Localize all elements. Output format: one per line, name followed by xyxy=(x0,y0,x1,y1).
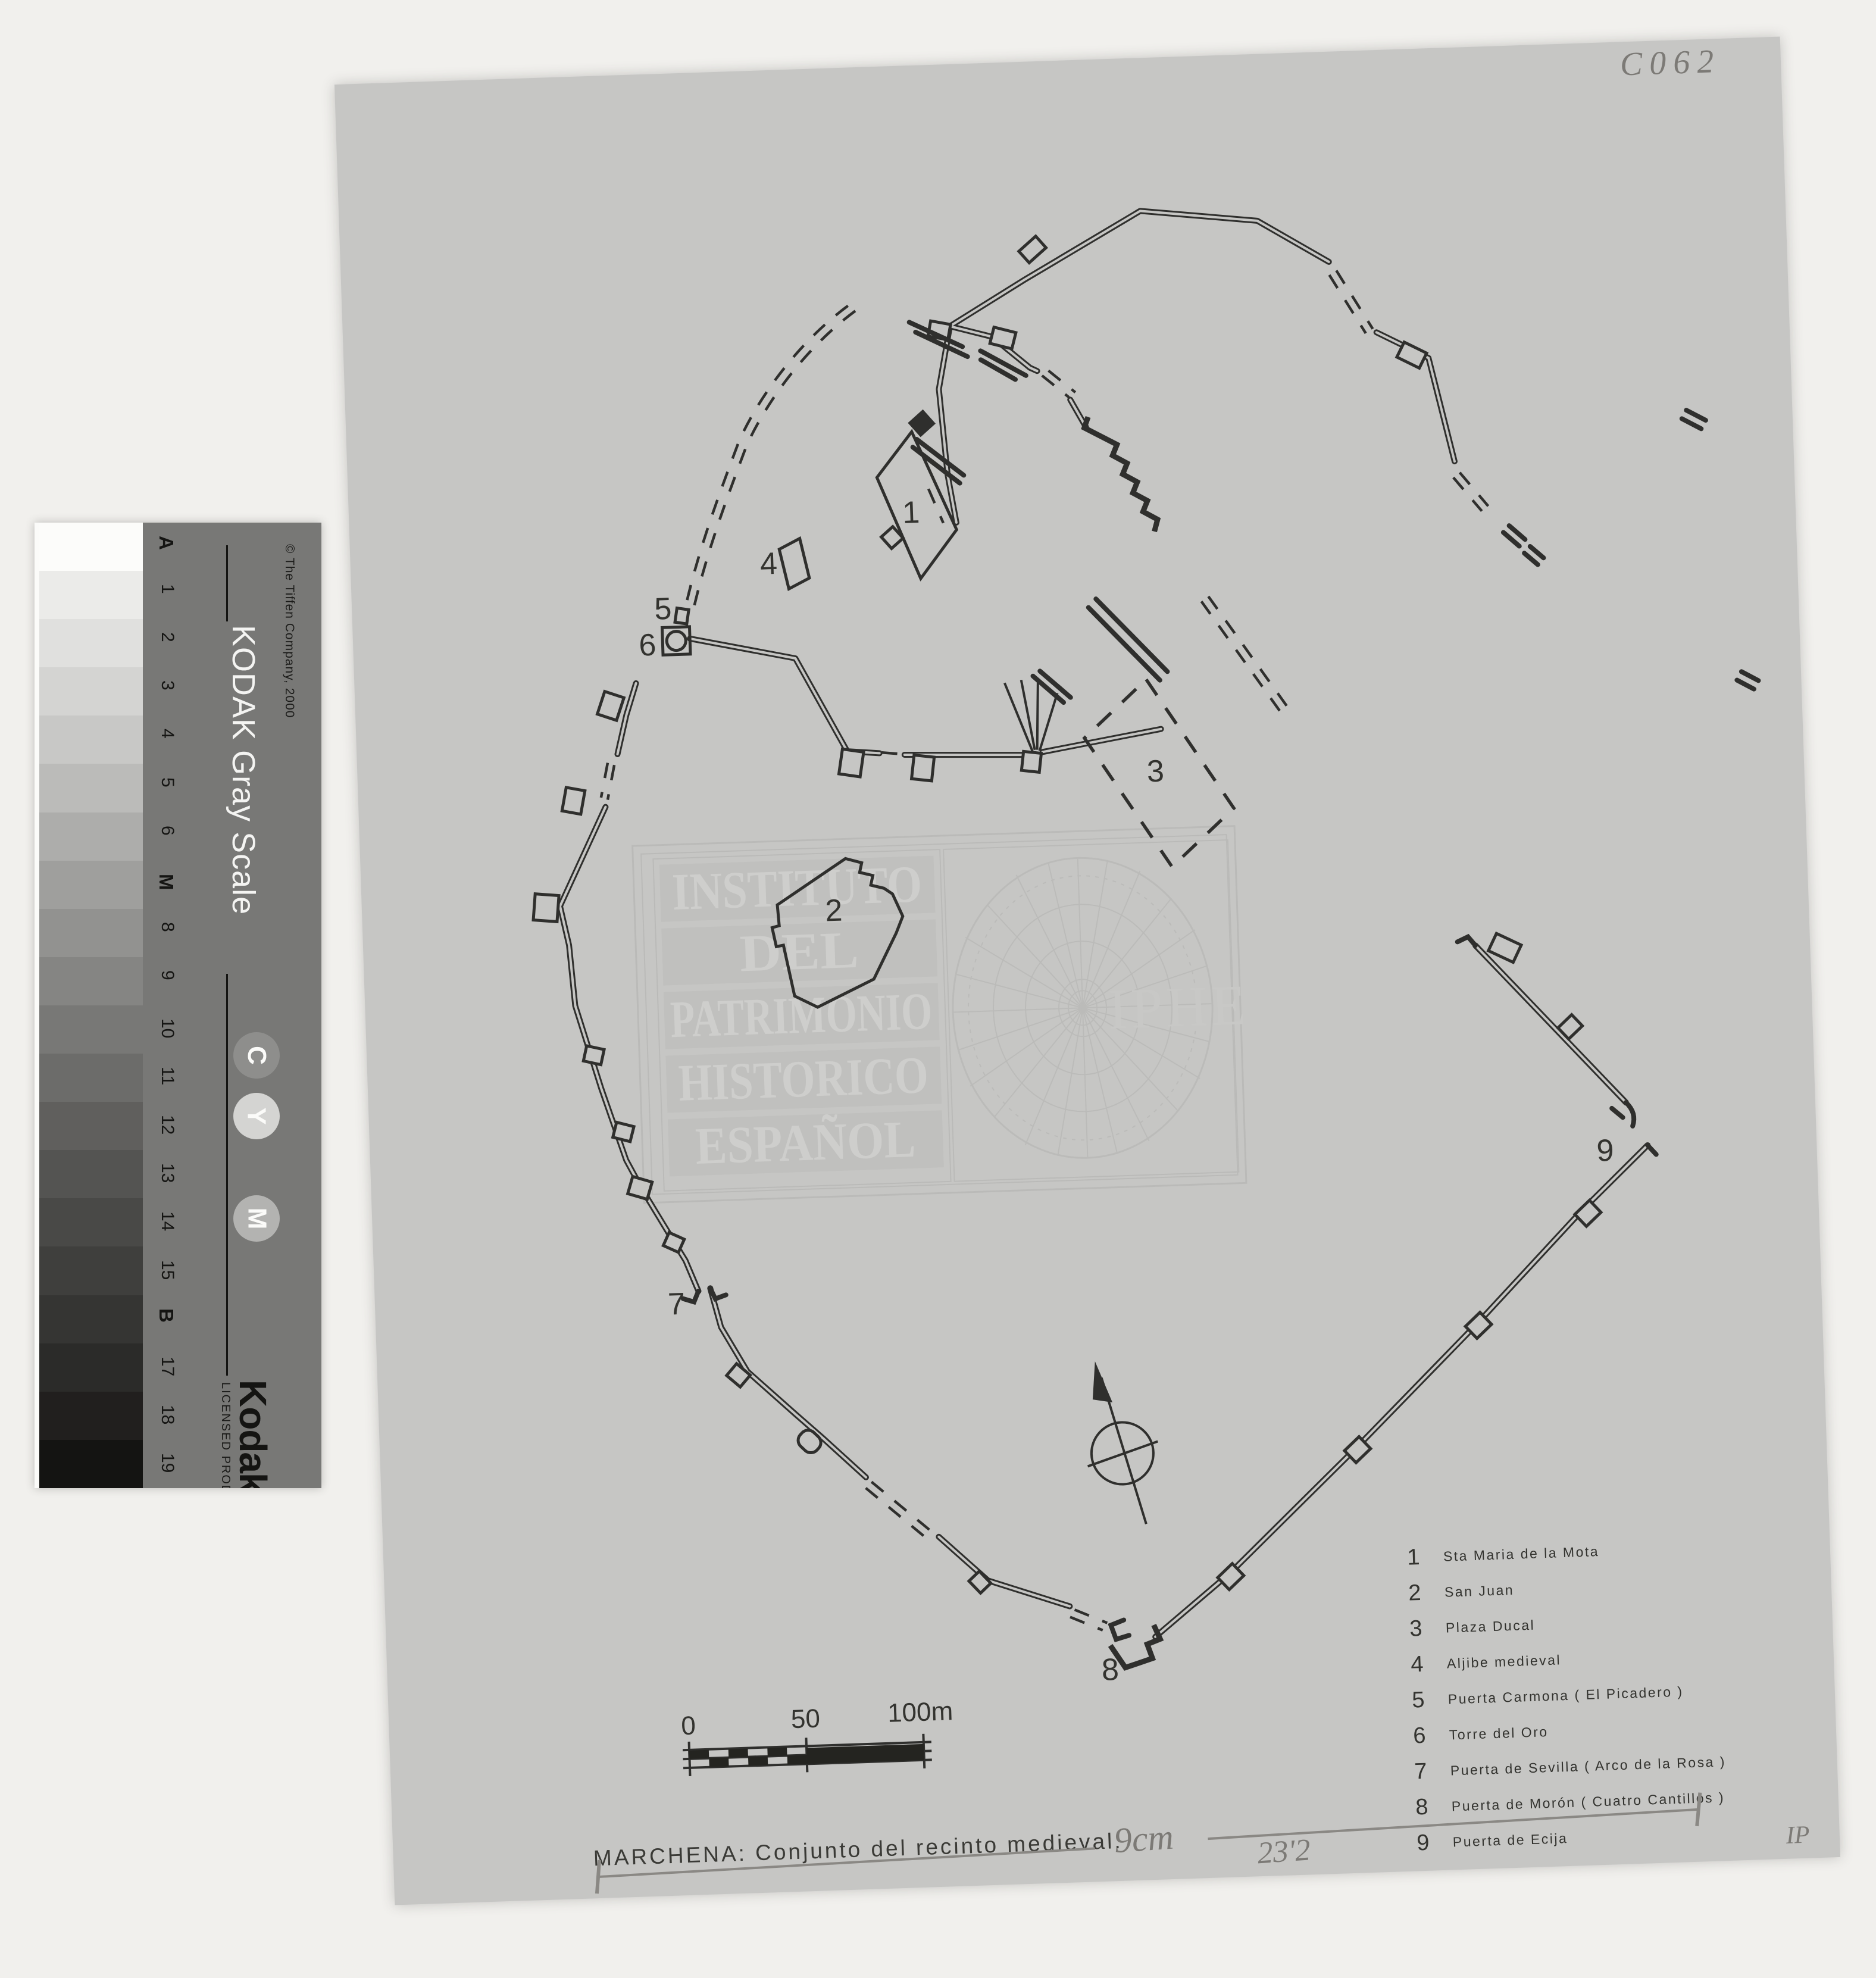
legend-label-7: Puerta de Sevilla ( Arco de la Rosa ) xyxy=(1450,1754,1726,1778)
magenta-patch-circle: M xyxy=(233,1195,280,1242)
cyan-letter: C xyxy=(242,1046,271,1065)
gray-patch-9 xyxy=(39,957,143,1005)
gray-patch-label-1: 1 xyxy=(157,584,177,594)
yellow-letter: Y xyxy=(242,1107,271,1124)
legend-label-2: San Juan xyxy=(1444,1582,1515,1600)
gray-patch-8 xyxy=(39,909,143,957)
gray-patch-label-12: 12 xyxy=(157,1115,177,1135)
point-5: 5 xyxy=(654,592,673,627)
watermark-rosette: IPHE xyxy=(948,852,1255,1162)
kodak-brand: Kodak xyxy=(231,1380,275,1488)
watermark-word-2: DEL xyxy=(739,921,859,983)
kodak-licensed: LICENSED PRODUCT xyxy=(218,1382,232,1488)
gray-patch-label-4: 4 xyxy=(157,729,177,739)
gray-patch-label-15: 15 xyxy=(157,1260,177,1280)
scanned-archive-photo: © The Tiffen Company, 2000 KODAK Gray Sc… xyxy=(0,0,1876,1978)
gray-patch-11 xyxy=(39,1054,143,1102)
gray-patch-6 xyxy=(39,813,143,861)
legend-num-1: 1 xyxy=(1407,1545,1421,1570)
rule-top xyxy=(226,545,228,621)
legend-label-4: Aljibe medieval xyxy=(1446,1652,1561,1671)
north-arrow xyxy=(1084,1360,1161,1526)
legend-num-7: 7 xyxy=(1414,1759,1428,1785)
point-9: 9 xyxy=(1596,1133,1615,1168)
corner-mark: IP xyxy=(1785,1821,1810,1849)
gray-patch-B xyxy=(39,1295,143,1343)
gray-patch-label-17: 17 xyxy=(157,1357,177,1376)
point-6: 6 xyxy=(639,628,657,663)
cyan-patch-circle: C xyxy=(233,1032,280,1079)
gray-patch-label-10: 10 xyxy=(157,1018,177,1038)
gray-patch-4 xyxy=(39,715,143,764)
wall-circuits-inner xyxy=(537,195,1663,1656)
legend-num-4: 4 xyxy=(1411,1652,1424,1677)
gray-patch-label-8: 8 xyxy=(157,922,177,932)
gray-patch-19 xyxy=(39,1440,143,1488)
point-3: 3 xyxy=(1146,754,1165,789)
map-caption: MARCHENA: Conjunto del recinto medieval. xyxy=(593,1829,1123,1870)
gray-patch-label-14: 14 xyxy=(157,1211,177,1231)
legend-num-3: 3 xyxy=(1409,1616,1423,1642)
legend-label-1: Sta Maria de la Mota xyxy=(1443,1543,1600,1564)
yellow-patch-circle: Y xyxy=(233,1093,280,1139)
gate-sevilla xyxy=(683,1288,726,1302)
gray-patch-label-A: A xyxy=(155,536,177,550)
legend-num-6: 6 xyxy=(1413,1723,1427,1749)
legend-num-5: 5 xyxy=(1412,1688,1425,1713)
point-7: 7 xyxy=(667,1287,686,1322)
gray-patch-M xyxy=(39,861,143,909)
tiffen-copyright: © The Tiffen Company, 2000 xyxy=(282,544,296,718)
gray-patch-15 xyxy=(39,1246,143,1295)
kodak-title: KODAK Gray Scale xyxy=(225,625,262,915)
gray-patch-label-3: 3 xyxy=(157,680,177,690)
gray-patch-3 xyxy=(39,667,143,715)
rule-bottom xyxy=(226,974,228,1376)
legend-num-8: 8 xyxy=(1415,1795,1429,1820)
gray-patch-18 xyxy=(39,1392,143,1440)
gray-patch-17 xyxy=(39,1343,143,1392)
legend-label-5: Puerta Carmona ( El Picadero ) xyxy=(1447,1683,1684,1707)
legend-label-6: Torre del Oro xyxy=(1449,1724,1548,1743)
legend: 1 Sta Maria de la Mota 2 San Juan 3 Plaz… xyxy=(1407,1535,1729,1855)
building-aljibe xyxy=(779,538,810,589)
gray-patch-2 xyxy=(39,619,143,667)
watermark-acronym: IPHE xyxy=(1107,973,1250,1041)
scale-fifty: 50 xyxy=(790,1704,821,1735)
watermark-word-4: HISTORICO xyxy=(677,1046,929,1113)
watermark-word-3: PATRIMONIO xyxy=(670,983,933,1049)
gray-patch-label-11: 11 xyxy=(157,1067,177,1085)
magenta-letter: M xyxy=(242,1208,271,1230)
legend-label-3: Plaza Ducal xyxy=(1445,1617,1535,1636)
gray-patch-label-B: B xyxy=(155,1308,177,1323)
scale-bar: 0 50 100m xyxy=(680,1696,955,1776)
gray-patch-label-13: 13 xyxy=(157,1163,177,1183)
gray-patch-14 xyxy=(39,1198,143,1246)
length-note: 9cm xyxy=(1113,1817,1175,1861)
scale-hundred: 100m xyxy=(887,1696,953,1728)
gray-scale-patches xyxy=(35,523,143,1488)
scale-zero: 0 xyxy=(681,1711,696,1741)
gray-patch-1 xyxy=(39,571,143,619)
point-4: 4 xyxy=(759,546,778,582)
gray-patch-5 xyxy=(39,764,143,812)
gray-patch-label-6: 6 xyxy=(157,826,177,836)
point-8: 8 xyxy=(1101,1652,1120,1688)
gray-patch-A xyxy=(39,523,143,571)
gray-patch-label-19: 19 xyxy=(157,1453,177,1473)
wall-circuits xyxy=(537,195,1663,1656)
plan-drawing: INSTITUTO DEL PATRIMONIO HISTORICO ESPAÑ… xyxy=(334,37,1840,1905)
stepped-wall-fragment xyxy=(1084,415,1158,534)
watermark-word-5: ESPAÑOL xyxy=(695,1111,917,1176)
width-note: 23'2 xyxy=(1256,1833,1312,1870)
kodak-gray-scale-strip: © The Tiffen Company, 2000 KODAK Gray Sc… xyxy=(35,523,321,1488)
point-2: 2 xyxy=(824,893,843,929)
kodak-label-band: © The Tiffen Company, 2000 KODAK Gray Sc… xyxy=(143,523,321,1488)
gray-patch-label-5: 5 xyxy=(157,777,177,788)
gray-patch-label-2: 2 xyxy=(157,632,177,642)
plan-sheet: INSTITUTO DEL PATRIMONIO HISTORICO ESPAÑ… xyxy=(334,37,1840,1905)
gray-patch-10 xyxy=(39,1005,143,1054)
gray-patch-12 xyxy=(39,1102,143,1150)
gray-patch-label-M: M xyxy=(155,874,177,890)
legend-num-2: 2 xyxy=(1408,1580,1422,1606)
archive-code: C062 xyxy=(1619,43,1721,83)
legend-label-9: Puerta de Ecija xyxy=(1452,1830,1568,1849)
iphe-watermark: INSTITUTO DEL PATRIMONIO HISTORICO ESPAÑ… xyxy=(633,826,1256,1203)
gray-patch-13 xyxy=(39,1150,143,1198)
gate-ecija-ends xyxy=(1457,931,1656,1161)
gray-patch-label-9: 9 xyxy=(157,970,177,980)
legend-num-9: 9 xyxy=(1417,1830,1430,1856)
point-1: 1 xyxy=(902,495,920,530)
gray-patch-label-18: 18 xyxy=(157,1405,177,1424)
